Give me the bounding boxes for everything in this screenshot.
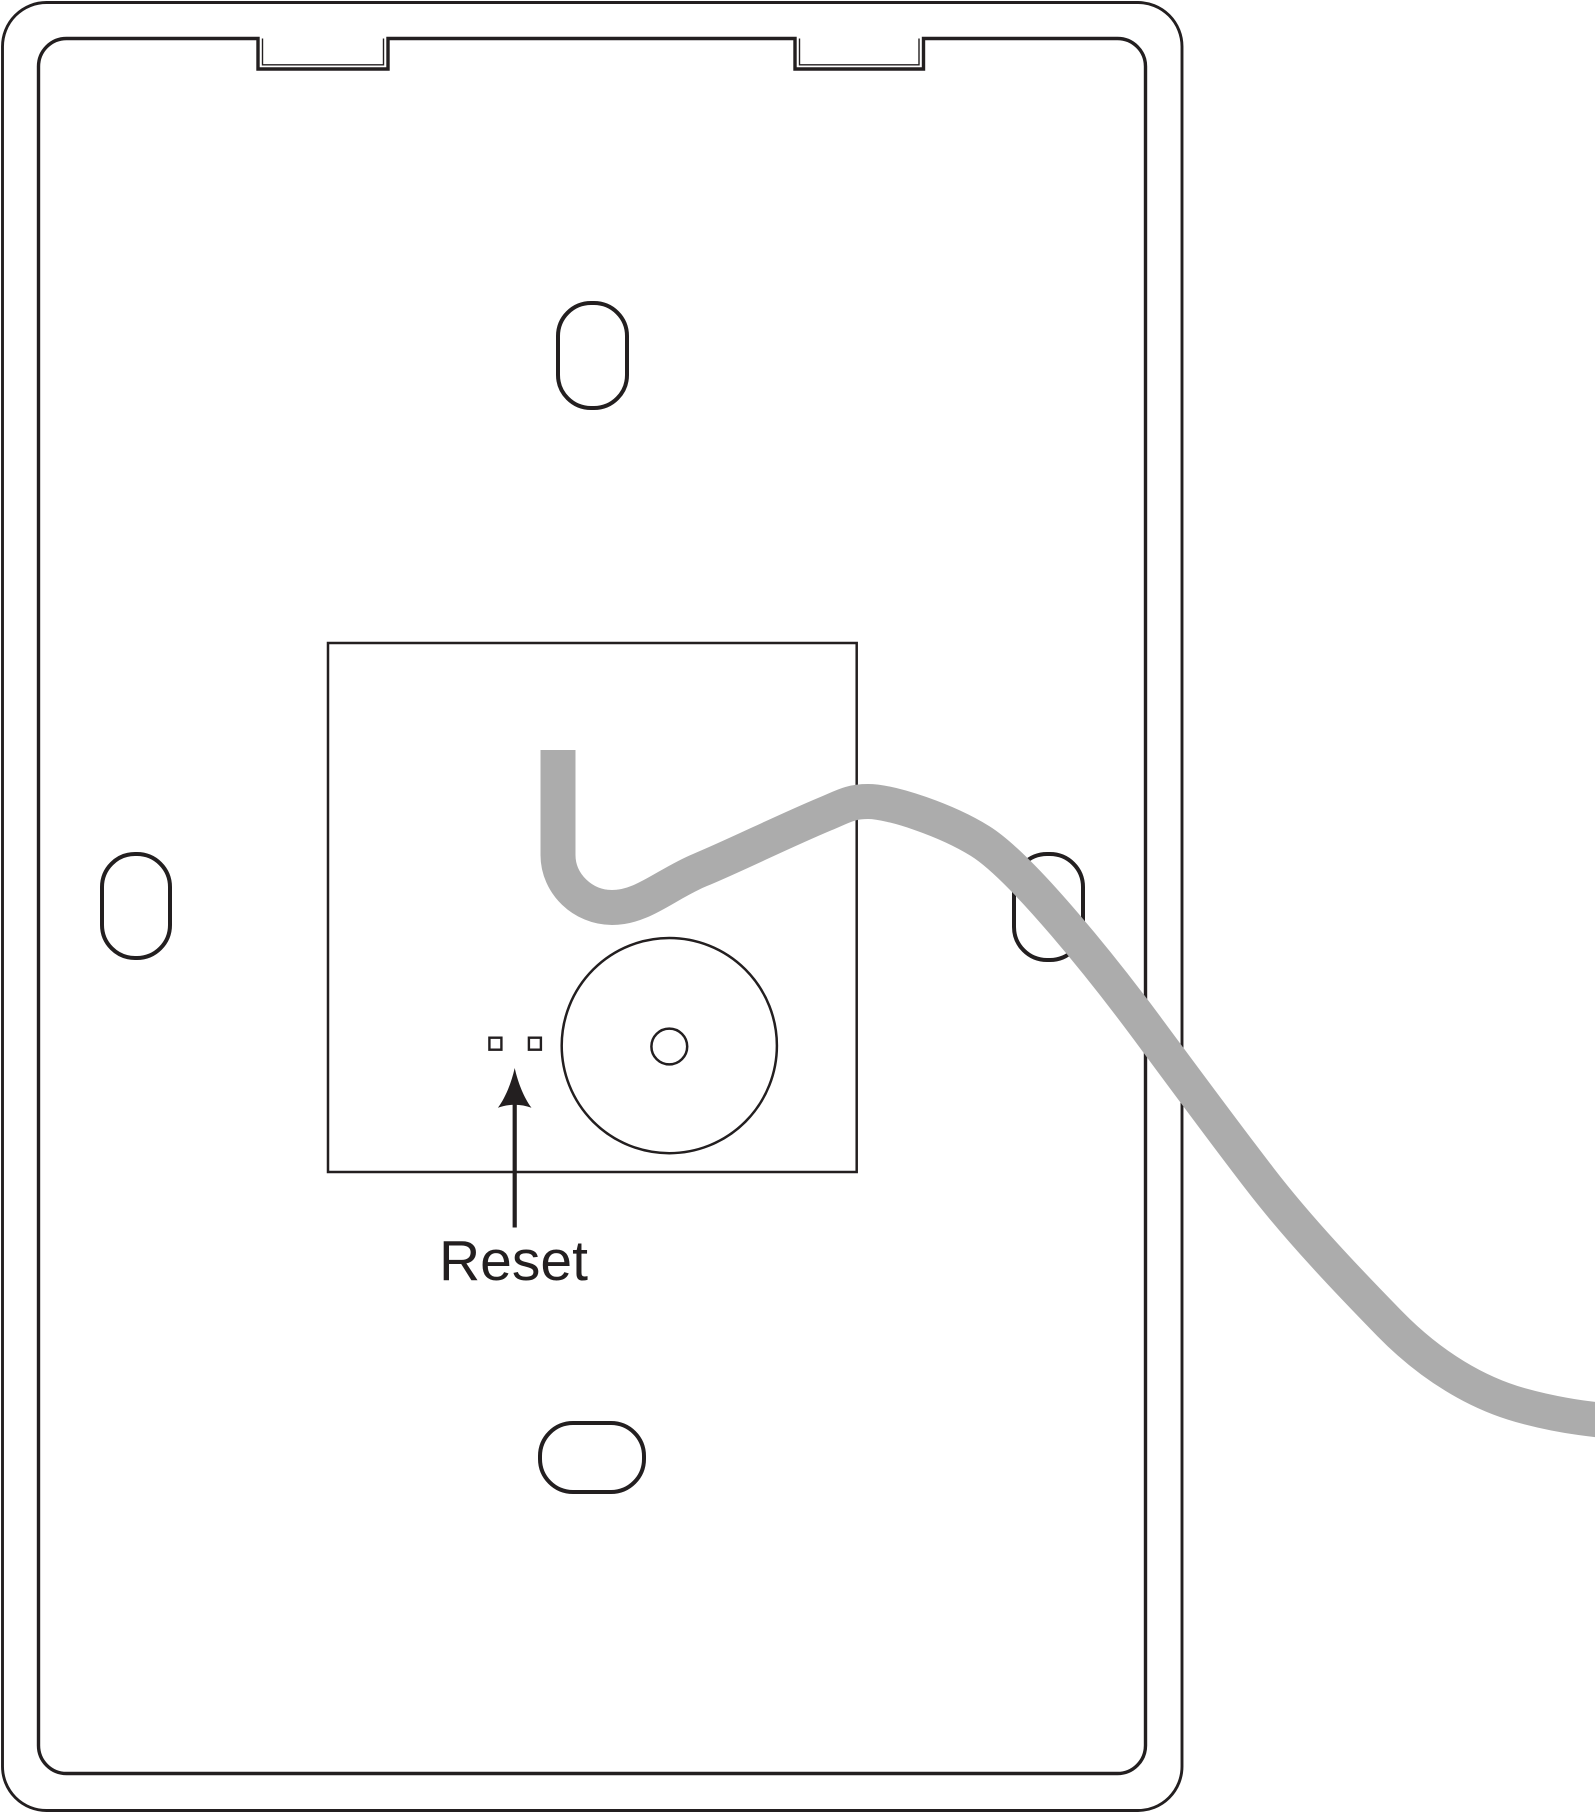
svg-text:Reset: Reset — [439, 1229, 588, 1293]
